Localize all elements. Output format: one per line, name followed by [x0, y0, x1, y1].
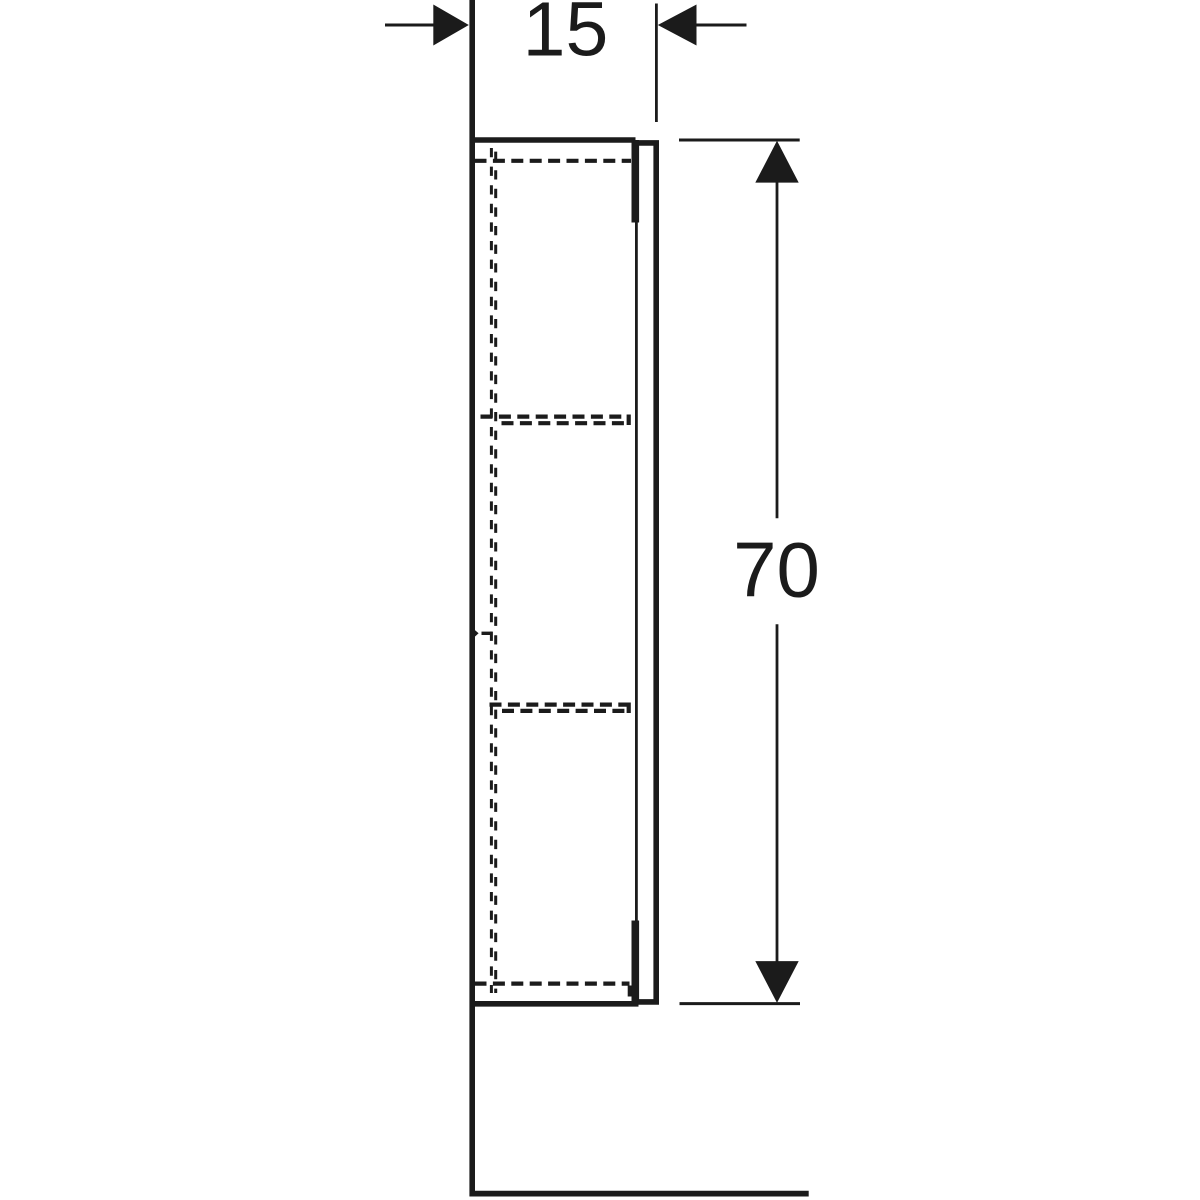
svg-text:15: 15	[523, 0, 609, 73]
svg-text:70: 70	[733, 526, 820, 614]
